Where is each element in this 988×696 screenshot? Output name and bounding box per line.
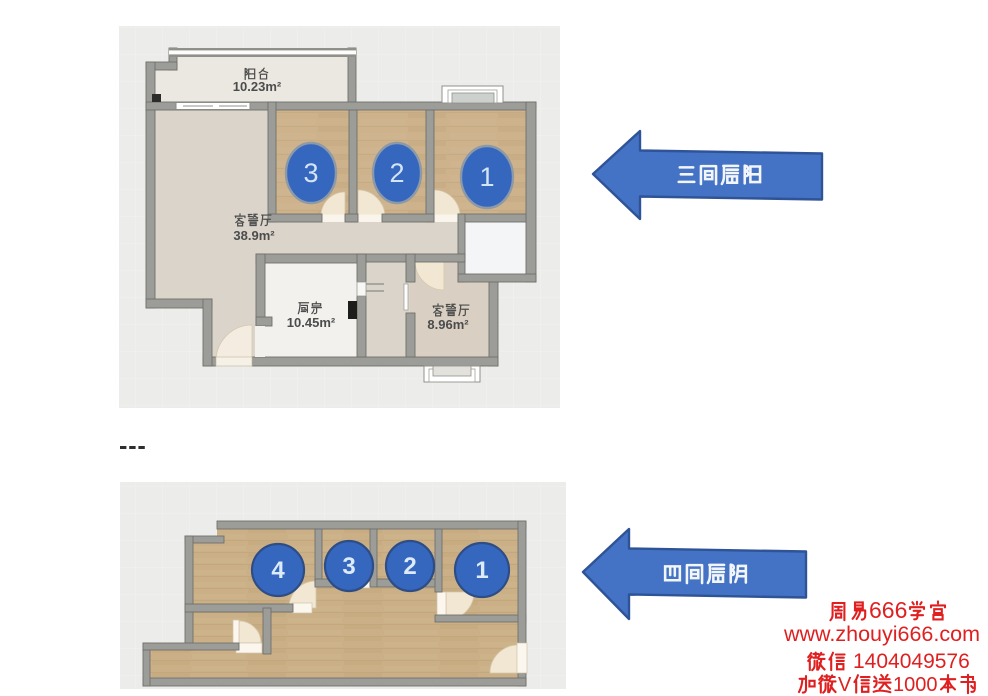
svg-text:V: V	[838, 674, 852, 696]
svg-text:4: 4	[271, 557, 285, 584]
svg-text:www.zhouyi666.com: www.zhouyi666.com	[783, 622, 980, 646]
svg-text:1000: 1000	[893, 674, 938, 696]
svg-text:2: 2	[389, 158, 404, 188]
svg-text:1: 1	[479, 162, 494, 192]
svg-text:3: 3	[303, 158, 318, 188]
svg-text:10.23m²: 10.23m²	[233, 79, 282, 94]
svg-text:8.96m²: 8.96m²	[427, 317, 469, 332]
svg-text:1: 1	[475, 557, 488, 584]
svg-text:3: 3	[342, 553, 355, 580]
svg-text:38.9m²: 38.9m²	[233, 228, 275, 243]
svg-text:10.45m²: 10.45m²	[287, 315, 336, 330]
svg-text:2: 2	[403, 553, 416, 580]
svg-text:1404049576: 1404049576	[853, 650, 970, 673]
svg-text:666: 666	[869, 597, 907, 623]
